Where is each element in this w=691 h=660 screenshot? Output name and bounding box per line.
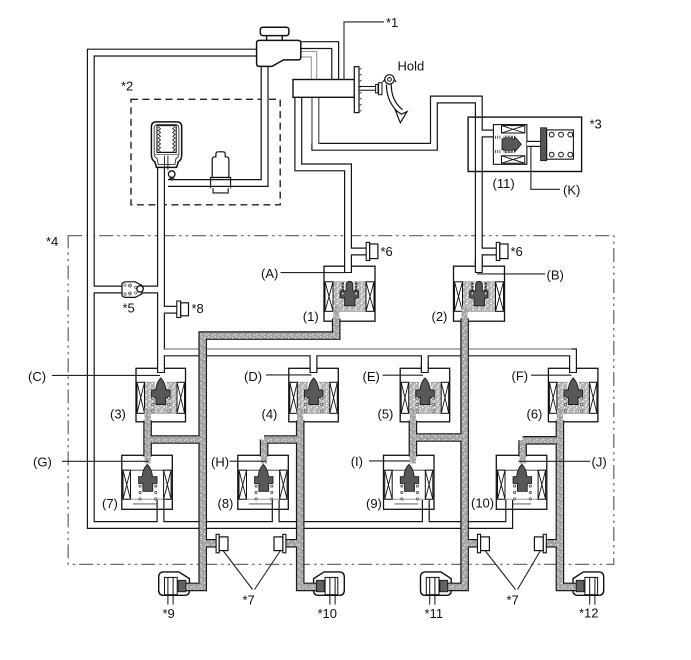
svg-text:(H): (H) [211,455,229,470]
svg-text:*12: *12 [579,606,599,621]
svg-text:(3): (3) [110,407,126,422]
svg-text:(4): (4) [262,407,278,422]
svg-text:(6): (6) [527,407,543,422]
svg-text:(1): (1) [303,309,319,324]
svg-text:*8: *8 [192,301,204,316]
svg-text:*6: *6 [511,244,523,259]
svg-text:*7: *7 [507,593,519,608]
svg-text:(8): (8) [218,496,234,511]
svg-text:*3: *3 [590,117,602,132]
svg-text:(B): (B) [547,268,564,283]
svg-text:*5: *5 [123,301,135,316]
svg-text:(7): (7) [102,496,118,511]
svg-text:(9): (9) [366,496,382,511]
svg-text:(10): (10) [471,496,494,511]
svg-text:*1: *1 [386,15,398,30]
svg-text:*7: *7 [243,593,255,608]
svg-text:*4: *4 [46,234,58,249]
svg-text:(5): (5) [378,407,394,422]
svg-text:(J): (J) [592,455,607,470]
svg-text:(11): (11) [493,176,515,191]
svg-text:(F): (F) [512,369,529,384]
svg-text:*10: *10 [318,606,338,621]
svg-text:(C): (C) [28,369,46,384]
svg-text:*6: *6 [381,244,393,259]
svg-text:(A): (A) [261,266,278,281]
svg-text:(G): (G) [33,455,52,470]
svg-text:*11: *11 [425,606,444,621]
svg-text:(E): (E) [363,369,380,384]
svg-text:(D): (D) [244,369,262,384]
svg-text:(I): (I) [351,454,363,469]
svg-text:*2: *2 [121,79,133,94]
svg-text:(K): (K) [563,183,580,198]
svg-text:(2): (2) [432,309,448,324]
svg-text:*9: *9 [163,606,175,621]
svg-text:Hold: Hold [398,59,425,74]
